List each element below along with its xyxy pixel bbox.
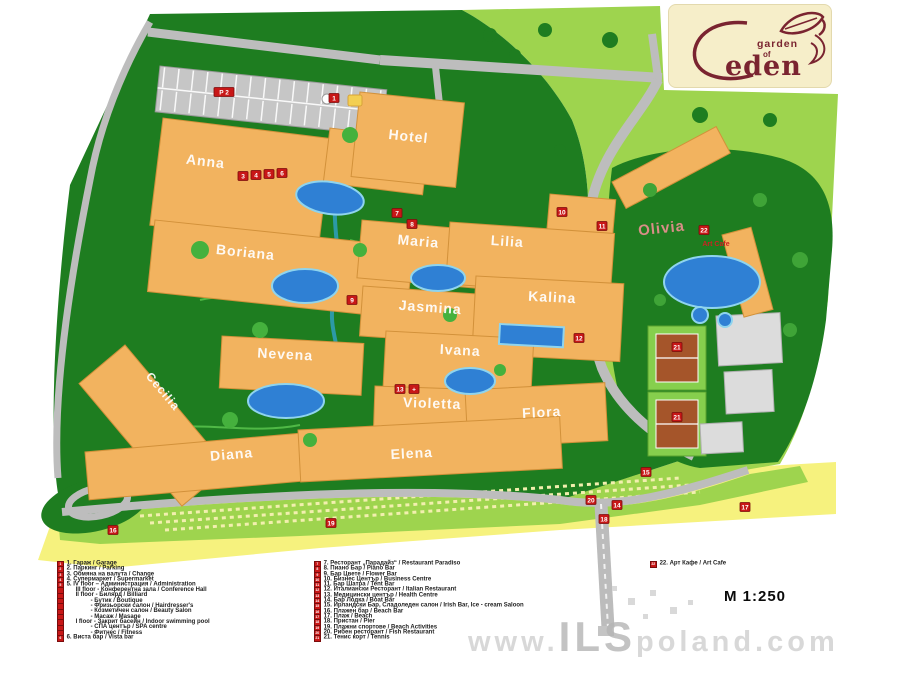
pool-olivia-kids-1 — [692, 307, 708, 323]
pool-kalina — [499, 324, 564, 347]
pool-maria — [411, 265, 465, 291]
marker-6: 6 — [277, 169, 287, 178]
marker-12: 12 — [574, 334, 584, 343]
svg-text:17: 17 — [741, 505, 749, 512]
watermark-noise — [650, 590, 656, 596]
svg-text:9: 9 — [350, 298, 354, 305]
marker-16: 16 — [108, 526, 118, 535]
legend-column-3: 2222. Арт Кафе / Art Cafe — [650, 561, 726, 566]
marker-21b: 21 — [672, 413, 682, 422]
label-art-cafe: Art Cafe — [702, 241, 729, 248]
marker-22: 22 — [699, 226, 709, 235]
svg-text:P 2: P 2 — [219, 90, 229, 97]
logo-apple-icon: garden of eden — [669, 5, 831, 87]
watermark: www.ILSpoland.com — [468, 613, 839, 661]
svg-text:5: 5 — [267, 172, 271, 179]
svg-text:20: 20 — [587, 498, 595, 505]
logo-text-garden: garden — [757, 38, 798, 50]
legend-item: 66. Виста бар / Vista bar — [57, 635, 210, 640]
marker-medical-cross: + — [409, 385, 419, 394]
legend-marker: 6 — [57, 635, 64, 642]
svg-text:11: 11 — [599, 224, 606, 231]
pool-olivia — [664, 256, 760, 308]
watermark-suffix: poland.com — [636, 626, 839, 658]
svg-text:22: 22 — [700, 228, 708, 235]
marker-5: 5 — [264, 170, 274, 179]
marker-20: 20 — [586, 496, 596, 505]
label-lilia: Lilia — [490, 232, 524, 250]
svg-text:12: 12 — [575, 336, 583, 343]
kiosk — [348, 95, 362, 106]
label-elena: Elena — [390, 444, 433, 462]
marker-17: 17 — [740, 503, 750, 512]
marker-13: 13 — [395, 385, 405, 394]
marker-9: 9 — [347, 296, 357, 305]
svg-text:21: 21 — [673, 345, 681, 352]
marker-4: 4 — [251, 171, 261, 180]
svg-text:8: 8 — [410, 222, 414, 229]
garden-of-eden-logo: garden of eden — [668, 4, 832, 88]
marker-10: 10 — [557, 208, 567, 217]
svg-text:4: 4 — [254, 173, 258, 180]
marker-21a: 21 — [672, 343, 682, 352]
svg-text:19: 19 — [327, 521, 335, 528]
svg-text:3: 3 — [241, 174, 245, 181]
watermark-prefix: www. — [468, 626, 559, 658]
svg-text:7: 7 — [395, 211, 399, 218]
marker-7: 7 — [392, 209, 402, 218]
label-ivana: Ivana — [439, 341, 481, 359]
legend-marker: 22 — [650, 561, 657, 568]
legend-column-1: 11. Гараж / Garage 22. Паркинг / Parking… — [57, 561, 210, 640]
svg-text:18: 18 — [600, 517, 608, 524]
marker-8: 8 — [407, 220, 417, 229]
watermark-noise — [628, 598, 635, 605]
label-kalina: Kalina — [528, 288, 577, 306]
svg-text:21: 21 — [673, 415, 681, 422]
svg-text:13: 13 — [396, 387, 404, 394]
watermark-ils: ILS — [559, 613, 636, 660]
svg-text:6: 6 — [280, 171, 284, 178]
marker-18: 18 — [599, 515, 609, 524]
pool-olivia-kids-2 — [718, 313, 732, 327]
svg-text:15: 15 — [642, 470, 650, 477]
legend-item: 2222. Арт Кафе / Art Cafe — [650, 561, 726, 566]
service-building-2 — [724, 369, 774, 413]
service-building-3 — [700, 422, 744, 454]
marker-14: 14 — [612, 501, 622, 510]
watermark-noise — [688, 600, 693, 605]
pool-boriana — [272, 269, 338, 303]
svg-text:14: 14 — [613, 503, 621, 510]
label-violetta: Violetta — [403, 394, 462, 412]
marker-parking: P 2 — [214, 88, 234, 97]
pool-nevena — [248, 384, 324, 418]
label-nevena: Nevena — [257, 345, 314, 364]
marker-19: 19 — [326, 519, 336, 528]
svg-text:+: + — [412, 387, 416, 394]
watermark-noise — [612, 586, 617, 591]
pool-ivana — [445, 368, 495, 394]
svg-text:16: 16 — [109, 528, 117, 535]
marker-11: 11 — [597, 222, 607, 231]
marker-1: 1 — [329, 94, 339, 103]
label-flora: Flora — [522, 403, 562, 421]
svg-text:1: 1 — [332, 96, 336, 103]
logo-text-eden: eden — [725, 51, 802, 82]
resort-map-page: Anna Hotel Boriana Maria Lilia Jasmina K… — [0, 0, 900, 675]
map-scale-label: M 1:250 — [724, 588, 786, 605]
marker-15: 15 — [641, 468, 651, 477]
marker-3: 3 — [238, 172, 248, 181]
svg-text:10: 10 — [558, 210, 566, 217]
legend-marker: 21 — [314, 635, 321, 642]
